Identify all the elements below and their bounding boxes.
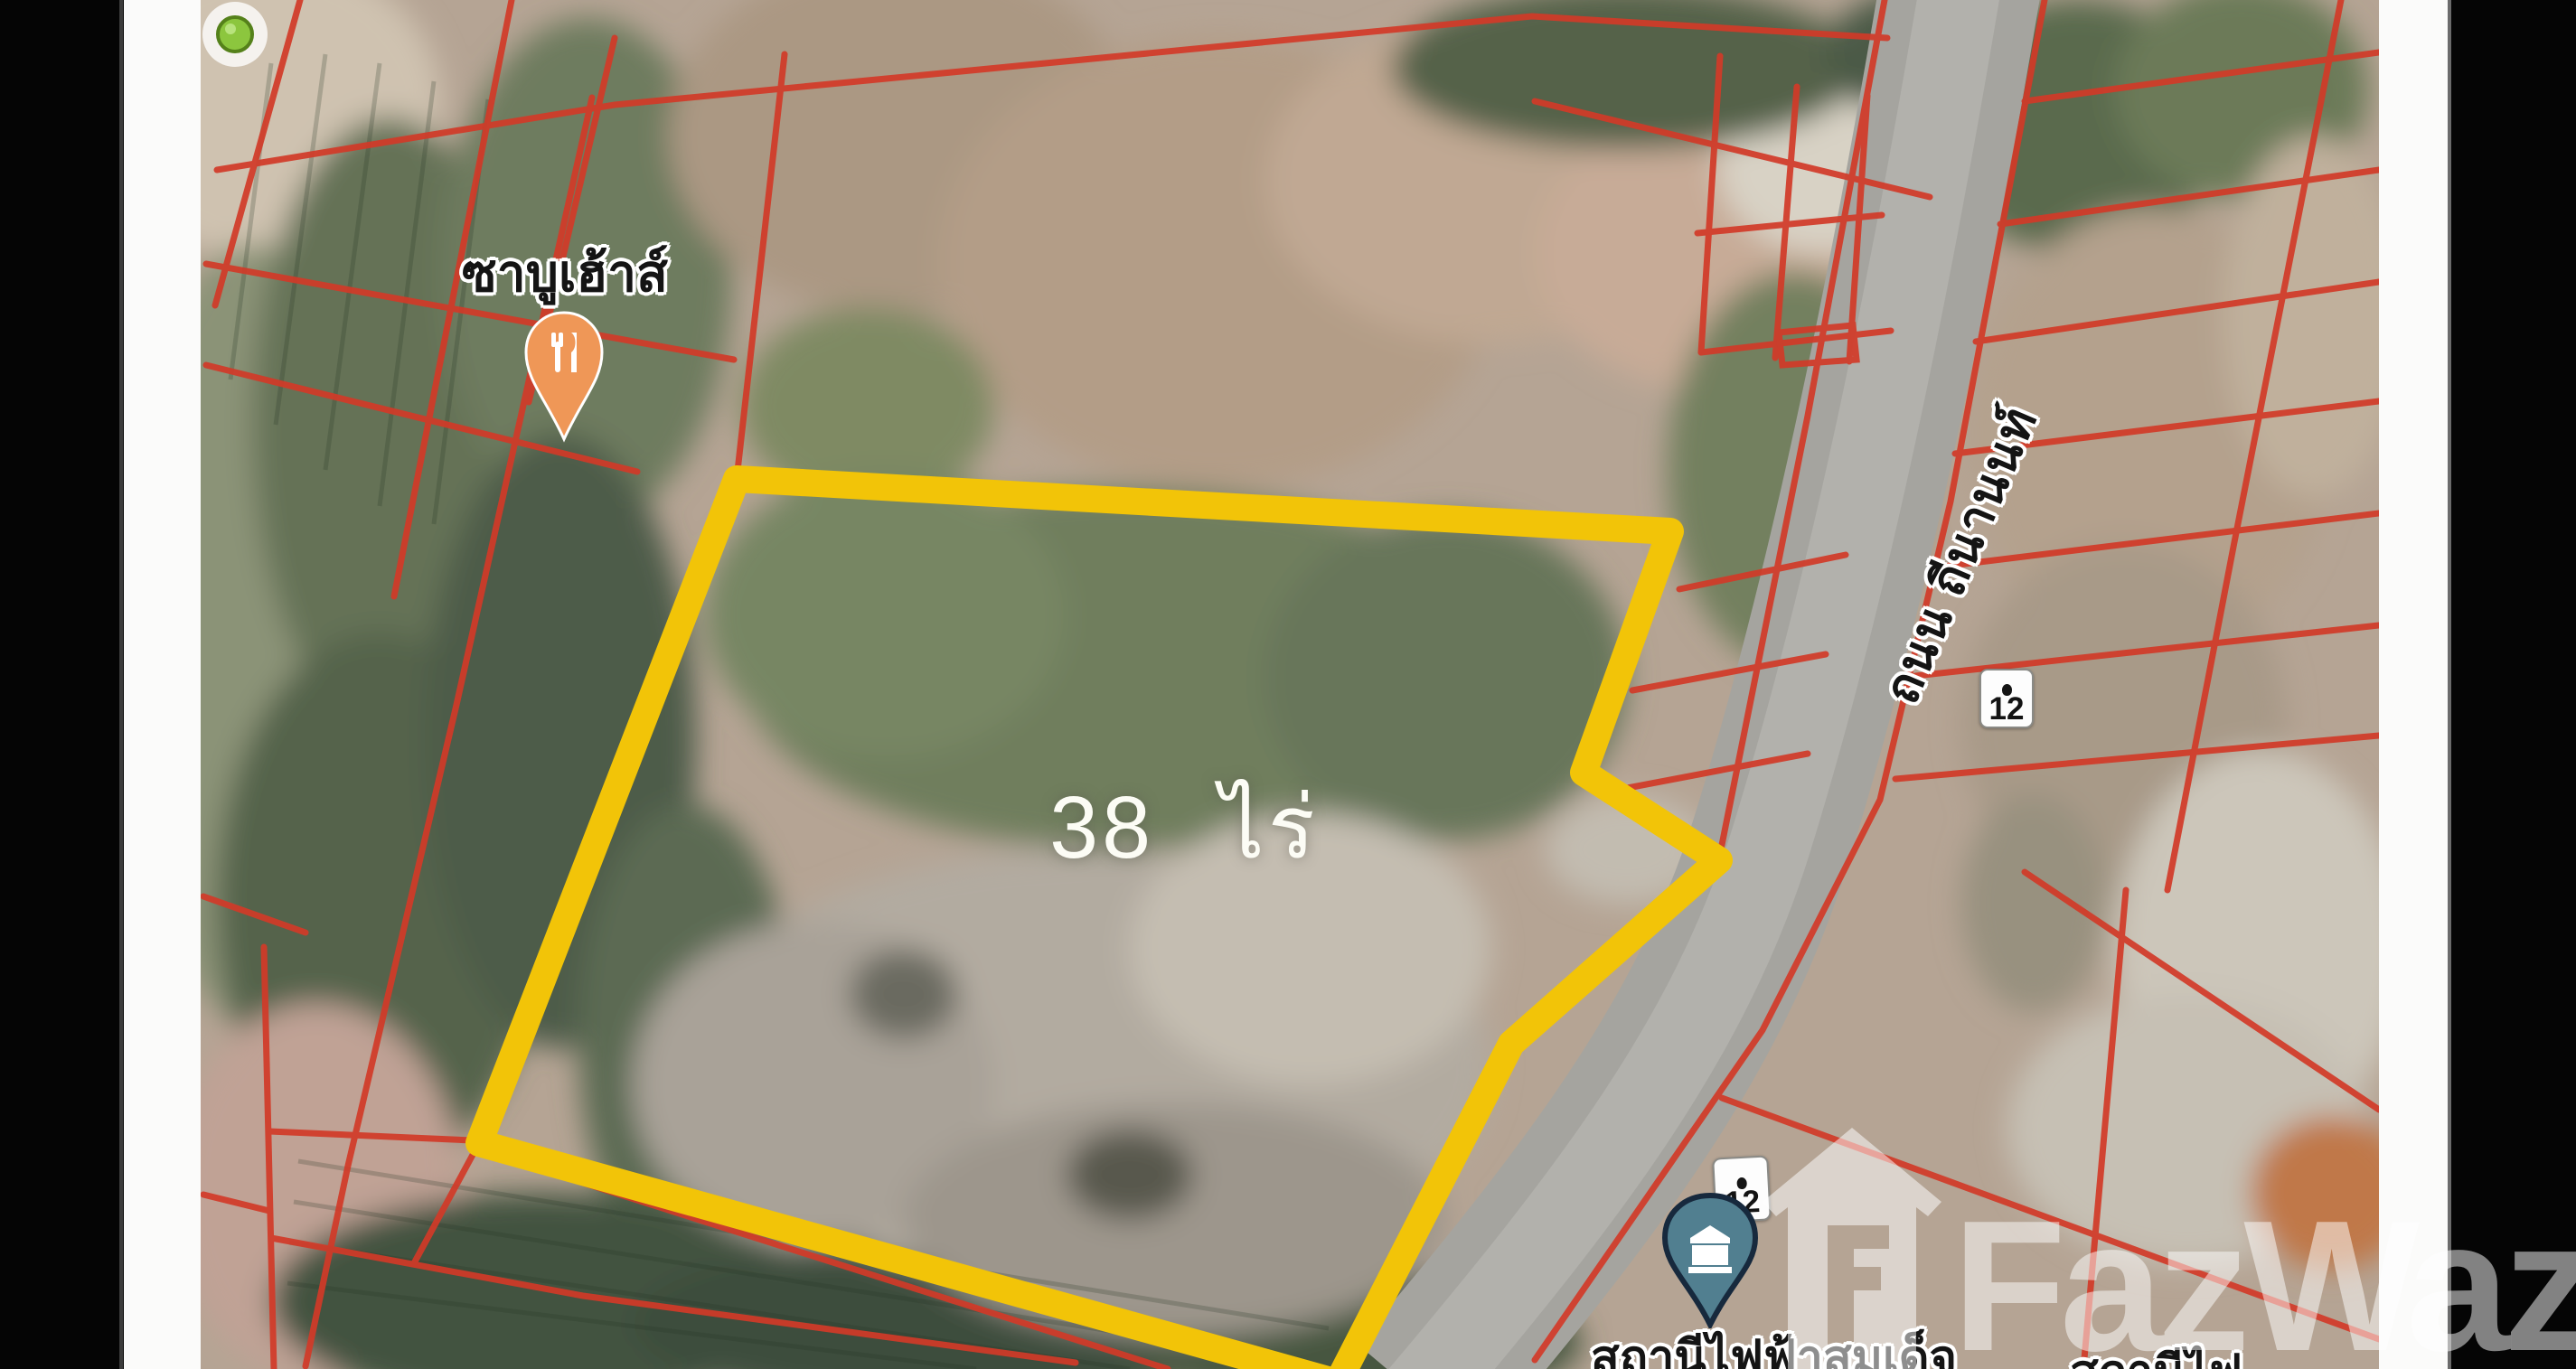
substation-right-label: สถานีไฟ	[2070, 1334, 2242, 1369]
card-right-divider	[2448, 0, 2451, 1369]
screenshot-stage: ซาบูเฮ้าส์ 38 ไร่ ถนน ถีนานนท์ 12 12	[0, 0, 2576, 1369]
card-left-divider	[119, 0, 123, 1369]
restaurant-pin-body	[526, 313, 602, 439]
substation-pin[interactable]	[1659, 1191, 1761, 1328]
marker-core	[218, 17, 252, 52]
route-number: 12	[1989, 693, 2025, 727]
restaurant-pin[interactable]	[522, 309, 606, 443]
green-dot-marker[interactable]	[201, 0, 269, 69]
marker-highlight	[225, 23, 236, 34]
satellite-map-canvas	[201, 0, 2379, 1369]
satellite-map-photo: ซาบูเฮ้าส์ 38 ไร่ ถนน ถีนานนท์ 12 12	[201, 0, 2379, 1369]
plot-area-label: 38 ไร่	[1012, 757, 1356, 896]
substation-left-label: สถานีไฟฟ้าสมเด็จ	[1591, 1319, 1957, 1369]
route-shield-12-upper: 12	[1979, 669, 2034, 728]
restaurant-poi-label: ซาบูเฮ้าส์	[411, 233, 719, 314]
